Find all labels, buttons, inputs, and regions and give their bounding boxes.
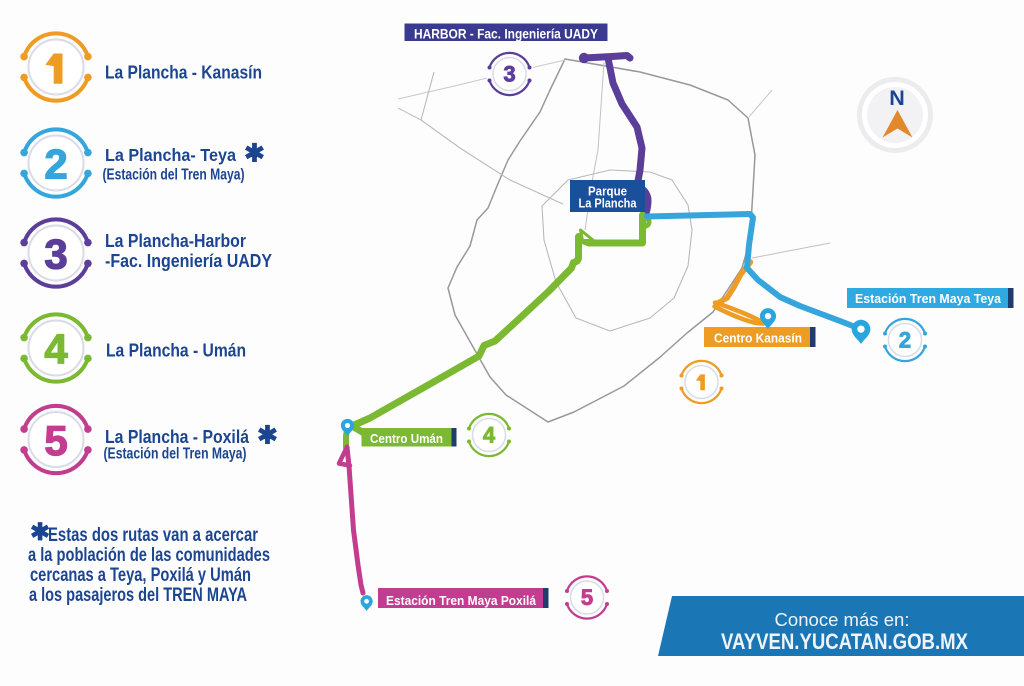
- svg-text:(Estación del Tren Maya): (Estación del Tren Maya): [104, 446, 247, 463]
- svg-text:Estación Tren Maya Teya: Estación Tren Maya Teya: [855, 291, 1002, 306]
- svg-text:4: 4: [44, 326, 68, 373]
- svg-text:Estación Tren Maya Poxilá: Estación Tren Maya Poxilá: [386, 593, 537, 608]
- svg-text:HARBOR - Fac. Ingeniería UADY: HARBOR - Fac. Ingeniería UADY: [414, 25, 599, 41]
- svg-text:5: 5: [44, 417, 67, 464]
- svg-text:La Plancha - Umán: La Plancha - Umán: [106, 340, 246, 361]
- svg-text:La Plancha - Kanasín: La Plancha - Kanasín: [105, 62, 262, 83]
- svg-text:-Fac. Ingeniería UADY: -Fac. Ingeniería UADY: [105, 251, 272, 271]
- svg-text:a la población de las comunida: a la población de las comunidades: [28, 545, 270, 566]
- svg-text:✱: ✱: [257, 422, 278, 450]
- svg-text:(Estación del Tren Maya): (Estación del Tren Maya): [103, 167, 245, 184]
- svg-text:Conoce más en:: Conoce más en:: [775, 609, 910, 630]
- svg-text:cercanas a Teya, Poxilá y Umán: cercanas a Teya, Poxilá y Umán: [30, 565, 251, 586]
- svg-text:a los pasajeros del TREN MAYA: a los pasajeros del TREN MAYA: [29, 585, 247, 606]
- svg-text:5: 5: [581, 585, 593, 610]
- svg-text:La Plancha-Harbor: La Plancha-Harbor: [105, 231, 246, 251]
- svg-text:Estas dos rutas van a acercar: Estas dos rutas van a acercar: [48, 525, 258, 546]
- svg-text:✱: ✱: [244, 140, 265, 168]
- svg-text:VAYVEN.YUCATAN.GOB.MX: VAYVEN.YUCATAN.GOB.MX: [721, 629, 968, 654]
- svg-text:2: 2: [899, 328, 911, 353]
- svg-text:N: N: [889, 86, 905, 110]
- svg-text:La Plancha - Poxilá: La Plancha - Poxilá: [105, 426, 250, 447]
- svg-text:3: 3: [44, 231, 67, 278]
- svg-text:2: 2: [44, 141, 67, 188]
- svg-text:Centro Umán: Centro Umán: [370, 431, 443, 446]
- svg-text:La Plancha: La Plancha: [579, 197, 638, 211]
- svg-text:3: 3: [503, 62, 515, 87]
- svg-text:Centro Kanasín: Centro Kanasín: [714, 331, 802, 346]
- svg-text:4: 4: [483, 423, 496, 448]
- svg-text:La Plancha- Teya: La Plancha- Teya: [105, 145, 236, 165]
